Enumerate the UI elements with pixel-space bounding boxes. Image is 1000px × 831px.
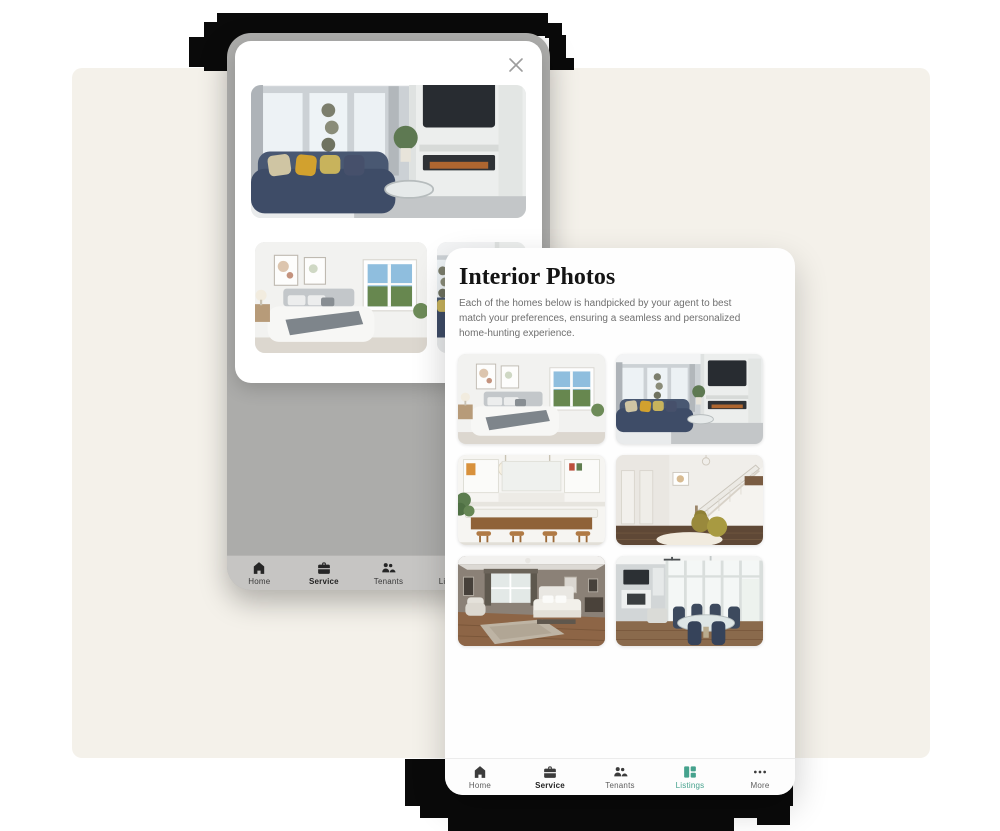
nav-label: Service [535, 782, 565, 790]
nav-label: More [750, 782, 769, 790]
nav-item-listings[interactable]: Listings [655, 759, 725, 795]
staircase-photo[interactable] [616, 455, 763, 545]
home-icon [251, 560, 267, 576]
front-bottom-nav: HomeServiceTenantsListingsMore [445, 758, 795, 795]
service-icon [316, 560, 332, 576]
nav-label: Home [248, 578, 270, 586]
living-room-photo[interactable] [616, 354, 763, 444]
kitchen-photo[interactable] [458, 455, 605, 545]
nav-label: Tenants [374, 578, 403, 586]
bedroom-photo-small[interactable] [255, 242, 427, 353]
home-icon [472, 764, 488, 780]
page-description: Each of the homes below is handpicked by… [459, 297, 761, 341]
nav-label: Home [469, 782, 491, 790]
nav-item-tenants[interactable]: Tenants [356, 556, 421, 590]
dining-room-photo[interactable] [616, 556, 763, 646]
nav-item-home[interactable]: Home [445, 759, 515, 795]
marketing-canvas: HomeServiceTenantsListingsMore Interior … [0, 0, 1000, 831]
tenants-icon [380, 560, 396, 576]
more-icon [752, 764, 768, 780]
page-title: Interior Photos [459, 264, 781, 290]
front-phone-screen: Interior Photos Each of the homes below … [445, 248, 795, 795]
nav-label: Listings [676, 782, 705, 790]
nav-item-home[interactable]: Home [227, 556, 292, 590]
living-room-photo-large[interactable] [251, 85, 526, 218]
nav-label: Tenants [605, 782, 634, 790]
nav-item-service[interactable]: Service [292, 556, 357, 590]
close-icon[interactable] [504, 53, 528, 77]
nav-item-tenants[interactable]: Tenants [585, 759, 655, 795]
photo-grid [458, 354, 763, 646]
listings-icon [682, 764, 698, 780]
master-bedroom-photo[interactable] [458, 556, 605, 646]
nav-label: Service [309, 578, 339, 586]
tenants-icon [612, 764, 628, 780]
bedroom-photo[interactable] [458, 354, 605, 444]
nav-item-more[interactable]: More [725, 759, 795, 795]
service-icon [542, 764, 558, 780]
nav-item-service[interactable]: Service [515, 759, 585, 795]
